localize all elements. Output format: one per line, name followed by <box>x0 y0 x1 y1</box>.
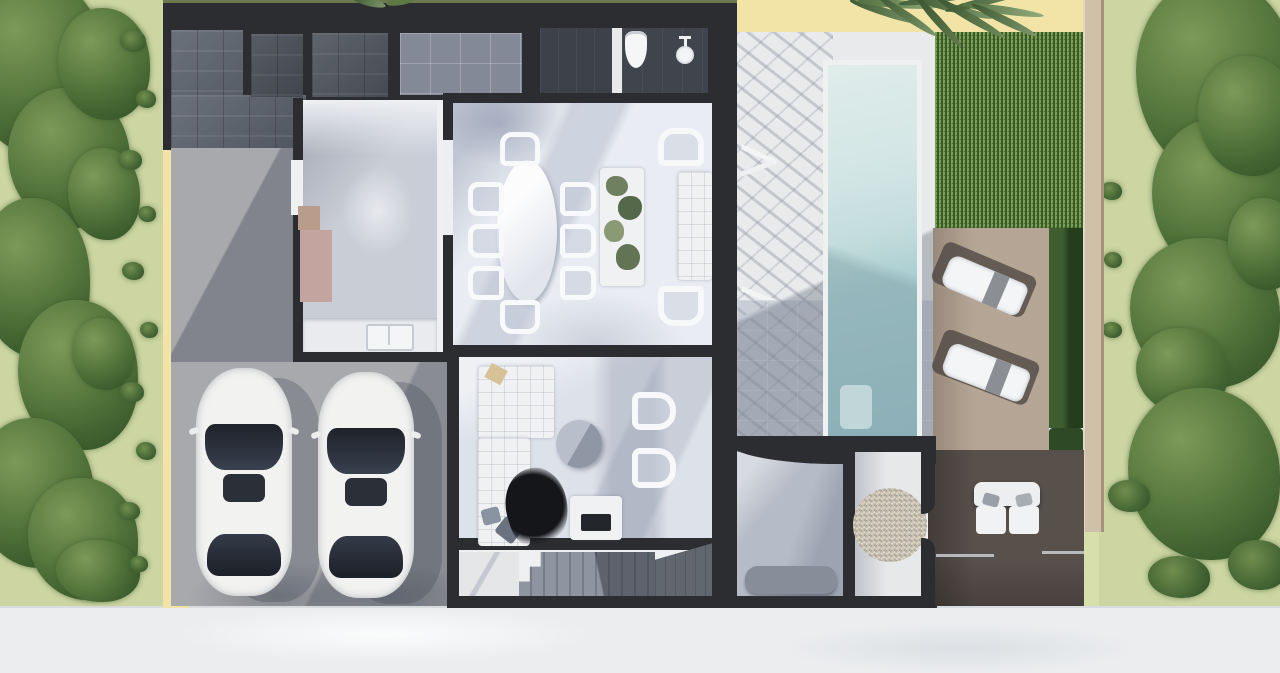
lounger-towel <box>985 358 1012 395</box>
driveway-upper <box>171 148 293 362</box>
dining-chair <box>560 182 596 216</box>
pool <box>823 60 922 442</box>
grass-strip-shaded <box>1049 228 1083 428</box>
coffee-table <box>556 420 602 468</box>
shrub <box>118 150 142 170</box>
car-sunroof <box>223 474 265 502</box>
palm-tree <box>848 0 1048 54</box>
deck-step-edge <box>936 554 994 557</box>
dining-chair <box>500 132 540 166</box>
shrub <box>120 382 144 402</box>
cream-wall-left <box>163 148 171 608</box>
car-windshield <box>205 424 283 470</box>
kitchen <box>303 100 437 352</box>
stair-landing <box>459 552 519 598</box>
living-armchair <box>632 392 676 430</box>
slate-patio <box>251 34 303 97</box>
plant <box>604 220 624 242</box>
plant <box>606 176 628 196</box>
dining-bench <box>678 172 712 280</box>
shrub <box>140 322 158 338</box>
plant <box>618 196 642 220</box>
pool-shadow <box>828 65 917 437</box>
dining-chair <box>468 224 504 258</box>
dining-table <box>497 160 557 302</box>
living-wall-left <box>447 352 459 608</box>
shrub <box>136 442 156 460</box>
loveseat-cushion <box>976 506 1006 534</box>
bottom-wall <box>447 596 937 608</box>
dining-chair <box>468 182 504 216</box>
lawn <box>935 32 1083 228</box>
shrub <box>1104 252 1122 268</box>
deck-step-edge <box>1042 551 1084 554</box>
glass-roof-panel <box>400 33 522 95</box>
shrub <box>138 206 156 222</box>
lounger-towel <box>982 271 1010 309</box>
car <box>196 368 292 596</box>
living-armchair <box>632 448 676 488</box>
overhang-strip <box>163 0 737 3</box>
shrub <box>136 90 156 108</box>
plant-console <box>600 168 644 286</box>
car-rear-window <box>329 536 403 578</box>
tree-clump <box>72 318 134 390</box>
shrub <box>1108 480 1150 512</box>
car-rear-window <box>207 534 281 576</box>
pebble-circle <box>853 488 927 562</box>
core-wall-vertical <box>712 93 737 608</box>
shrub <box>1148 556 1210 598</box>
street-strip <box>0 606 1280 673</box>
stair-upper-flight-shadow <box>519 552 655 598</box>
kitchen-cabinet-pink <box>300 230 332 302</box>
dining-armchair <box>658 128 704 166</box>
kitchen-cabinet-wood <box>298 206 320 230</box>
gravel-wall-right-lower <box>921 538 935 608</box>
dining-chair <box>500 300 540 334</box>
shrub <box>118 502 140 520</box>
dining-chair <box>560 266 596 300</box>
plant <box>616 244 640 270</box>
loveseat-cushion <box>1009 506 1039 534</box>
shower-room <box>540 28 612 94</box>
gravel-wall-right-upper <box>921 452 935 514</box>
dining-door-opening <box>443 140 453 235</box>
kitchen-wall-bottom <box>293 352 453 362</box>
car-sunroof <box>345 478 387 506</box>
car-windshield <box>327 428 405 474</box>
basin <box>676 46 694 64</box>
tv-console <box>570 496 622 540</box>
bathroom-partition <box>612 28 622 94</box>
sink-divider <box>388 326 390 345</box>
slate-patio <box>171 95 306 150</box>
shrub <box>120 30 146 52</box>
kitchen-sink <box>366 324 414 351</box>
tv-screen <box>581 514 611 531</box>
dining-chair <box>468 266 504 300</box>
garden-ground-patch <box>1083 532 1099 606</box>
car <box>318 372 414 598</box>
dining-chair <box>560 224 596 258</box>
staircase <box>519 552 655 598</box>
slate-patio <box>312 33 388 97</box>
shrub <box>122 262 144 280</box>
shrub <box>130 556 148 572</box>
tan-wall-right <box>1083 0 1104 532</box>
floorplan-render <box>0 0 1280 673</box>
pool-steps <box>840 385 872 429</box>
entry-bench <box>745 566 837 594</box>
dining-armchair <box>658 286 704 326</box>
shrub <box>1102 322 1122 338</box>
lounge-deck <box>928 450 1084 606</box>
